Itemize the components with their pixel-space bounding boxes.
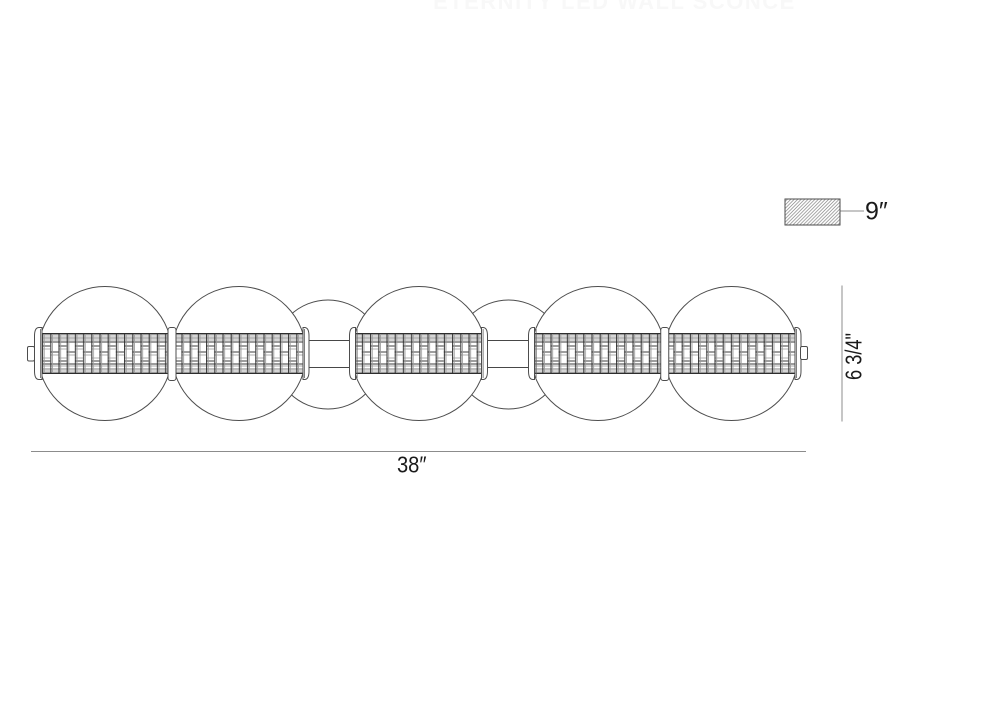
svg-text:6 3/4": 6 3/4" — [841, 333, 867, 380]
svg-text:9″: 9″ — [865, 198, 888, 226]
svg-text:38″: 38″ — [397, 452, 427, 478]
